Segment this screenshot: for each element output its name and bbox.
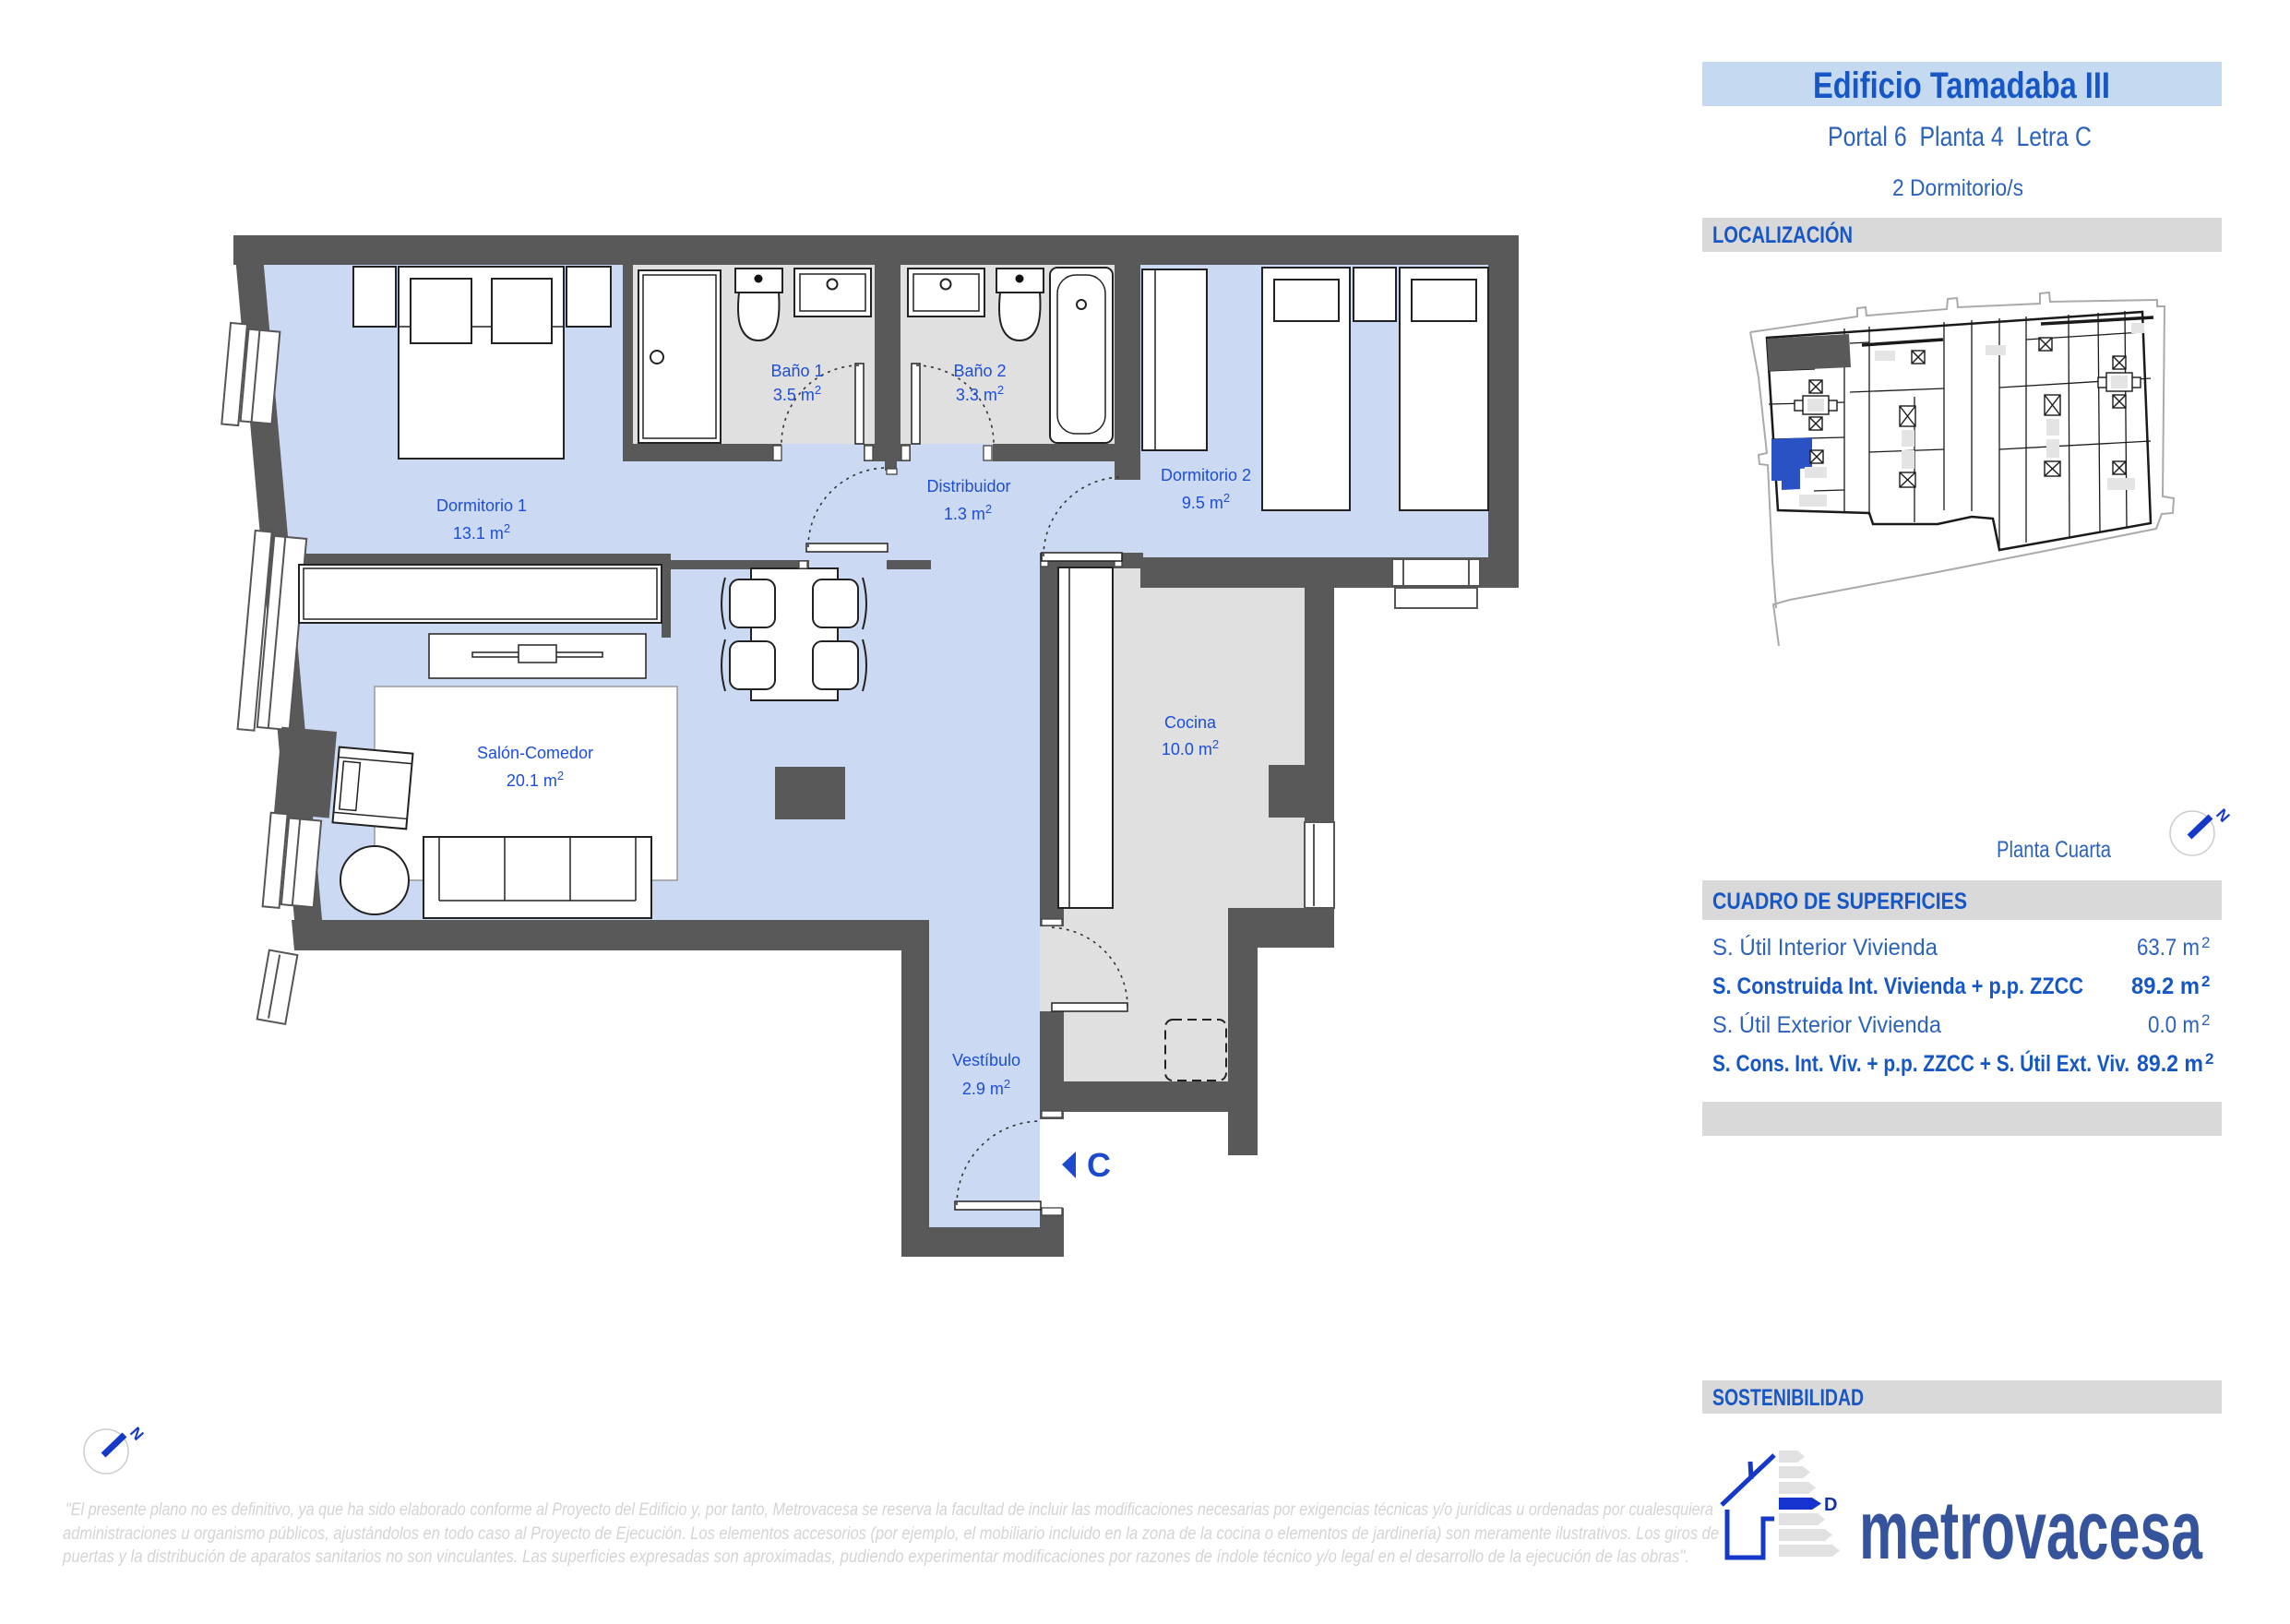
svg-text:D: D bbox=[1824, 1495, 1837, 1515]
svg-text:Distribuidor: Distribuidor bbox=[926, 477, 1010, 496]
svg-text:Dormitorio 1: Dormitorio 1 bbox=[436, 496, 527, 515]
svg-text:Portal 6 Planta 4 Letra C: Portal 6 Planta 4 Letra C bbox=[1828, 122, 2092, 152]
svg-text:Vestíbulo: Vestíbulo bbox=[952, 1051, 1020, 1069]
svg-text:89.2 m: 89.2 m bbox=[2137, 1051, 2203, 1077]
svg-text:CUADRO DE SUPERFICIES: CUADRO DE SUPERFICIES bbox=[1712, 889, 1967, 914]
svg-text:Edificio Tamadaba III: Edificio Tamadaba III bbox=[1813, 66, 2110, 106]
svg-text:13.1 m2: 13.1 m2 bbox=[453, 521, 510, 543]
svg-text:LOCALIZACIÓN: LOCALIZACIÓN bbox=[1712, 221, 1853, 248]
svg-text:0.0 m: 0.0 m bbox=[2148, 1012, 2200, 1038]
svg-text:2: 2 bbox=[2201, 1011, 2210, 1029]
svg-text:3.3 m2: 3.3 m2 bbox=[956, 383, 1004, 404]
svg-text:2.9 m2: 2.9 m2 bbox=[962, 1077, 1010, 1098]
svg-text:"El presente plano no es defin: "El presente plano no es definitivo, ya … bbox=[66, 1500, 1713, 1520]
svg-text:9.5 m2: 9.5 m2 bbox=[1182, 491, 1230, 512]
svg-text:S. Construida Int. Vivienda +: S. Construida Int. Vivienda + p.p. ZZCC bbox=[1712, 973, 2083, 999]
svg-text:Cocina: Cocina bbox=[1164, 713, 1217, 732]
svg-text:metrovacesa: metrovacesa bbox=[1859, 1484, 2203, 1576]
svg-text:S. Útil Interior Vivienda: S. Útil Interior Vivienda bbox=[1712, 934, 1938, 961]
svg-text:20.1 m2: 20.1 m2 bbox=[507, 769, 564, 790]
svg-text:Dormitorio 2: Dormitorio 2 bbox=[1161, 466, 1251, 484]
svg-text:administraciones u organismo p: administraciones u organismo públicos, a… bbox=[63, 1524, 1719, 1544]
svg-text:Baño 1: Baño 1 bbox=[770, 362, 823, 380]
svg-text:2: 2 bbox=[2201, 934, 2210, 951]
svg-text:2 Dormitorio/s: 2 Dormitorio/s bbox=[1892, 175, 2023, 201]
svg-text:S. Útil Exterior Vivienda: S. Útil Exterior Vivienda bbox=[1712, 1011, 1941, 1038]
svg-text:C: C bbox=[1087, 1146, 1111, 1184]
svg-text:2: 2 bbox=[2201, 973, 2210, 990]
svg-text:SOSTENIBILIDAD: SOSTENIBILIDAD bbox=[1712, 1385, 1864, 1411]
svg-text:1.3 m2: 1.3 m2 bbox=[944, 502, 992, 523]
svg-text:S. Cons. Int. Viv. + p.p. ZZCC: S. Cons. Int. Viv. + p.p. ZZCC + S. Útil… bbox=[1712, 1049, 2129, 1077]
svg-text:2: 2 bbox=[2205, 1050, 2213, 1068]
svg-text:63.7 m: 63.7 m bbox=[2137, 935, 2200, 961]
svg-text:Planta Cuarta: Planta Cuarta bbox=[1997, 837, 2111, 863]
svg-text:puertas y la distribución de a: puertas y la distribución de aparatos sa… bbox=[62, 1547, 1689, 1567]
svg-text:Salón-Comedor: Salón-Comedor bbox=[477, 744, 593, 762]
svg-text:89.2 m: 89.2 m bbox=[2131, 973, 2200, 999]
svg-text:3.5 m2: 3.5 m2 bbox=[773, 383, 821, 404]
svg-text:Baño 2: Baño 2 bbox=[953, 362, 1006, 380]
svg-text:10.0 m2: 10.0 m2 bbox=[1162, 737, 1219, 758]
